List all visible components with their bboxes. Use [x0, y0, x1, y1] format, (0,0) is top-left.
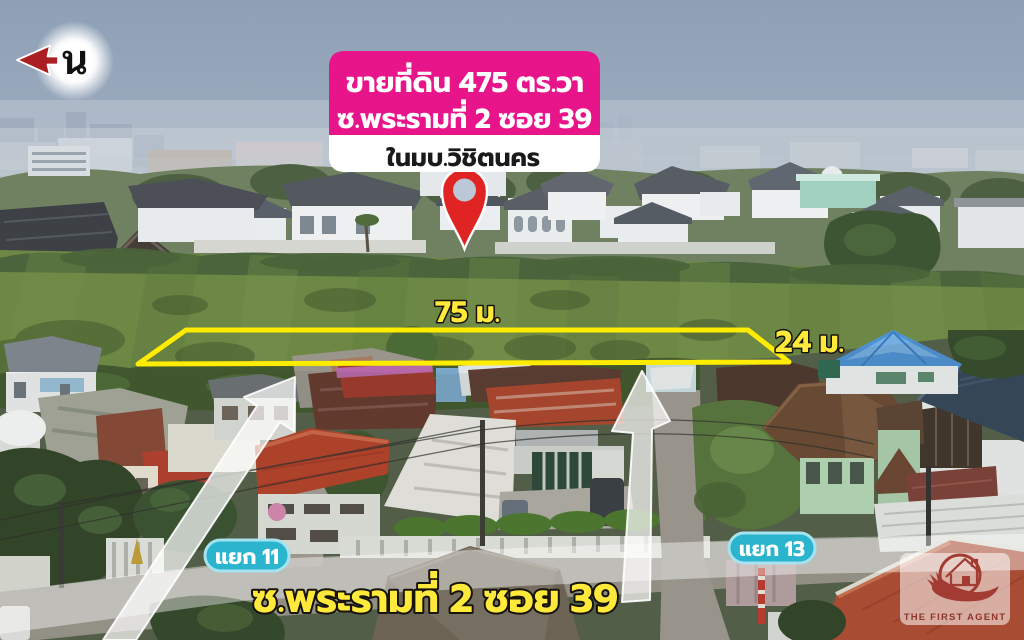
svg-text:THE FIRST AGENT: THE FIRST AGENT	[904, 612, 1007, 623]
